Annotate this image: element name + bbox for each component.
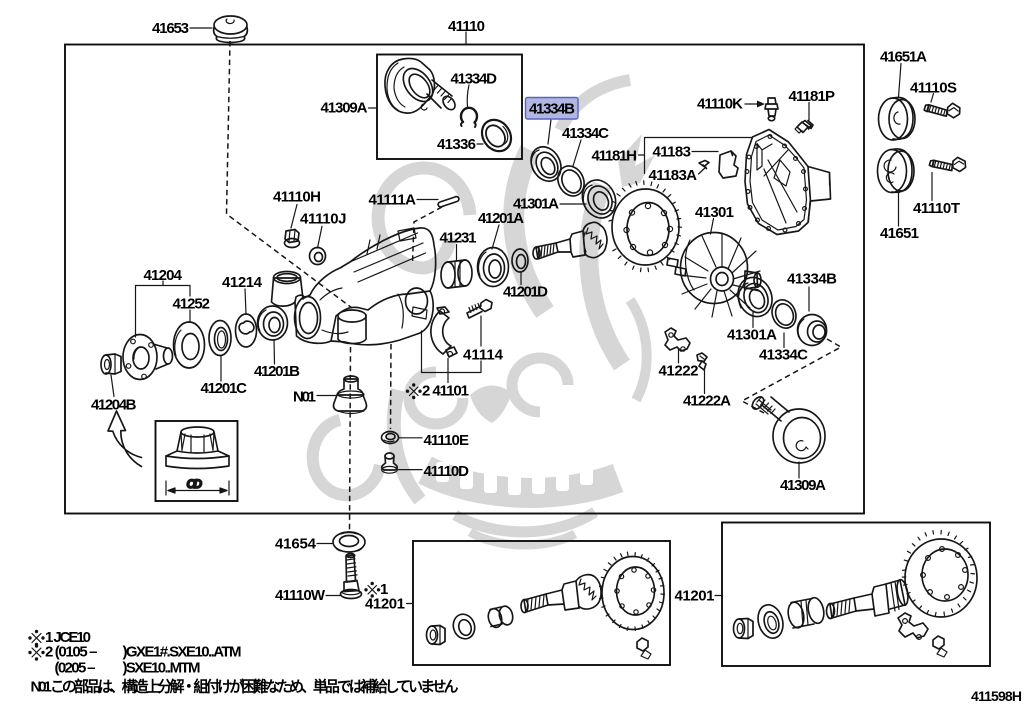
svg-text:41201C: 41201C	[201, 380, 248, 397]
svg-text:OD: OD	[187, 477, 203, 491]
svg-text:41201B: 41201B	[254, 363, 300, 380]
svg-text:2 41101: 2 41101	[422, 383, 469, 400]
svg-text:41222: 41222	[659, 363, 699, 380]
svg-text:41110: 41110	[448, 18, 485, 35]
svg-text:41309A: 41309A	[321, 100, 368, 117]
svg-text:N01: N01	[293, 389, 316, 406]
svg-text:41201A: 41201A	[478, 210, 524, 227]
svg-text:41110H: 41110H	[273, 189, 321, 206]
svg-text:41111A: 41111A	[369, 192, 417, 209]
svg-text:41110J: 41110J	[300, 211, 347, 228]
svg-text:41222A: 41222A	[683, 393, 731, 410]
svg-text:41654: 41654	[275, 536, 317, 553]
svg-text:41252: 41252	[173, 296, 211, 313]
svg-text:41653: 41653	[152, 20, 189, 37]
svg-text:41334C: 41334C	[562, 125, 609, 142]
svg-text:41651A: 41651A	[880, 49, 927, 66]
svg-text:41110K: 41110K	[697, 96, 743, 113]
svg-text:41201: 41201	[675, 588, 715, 605]
svg-text:411598H: 411598H	[971, 688, 1022, 704]
svg-text:41334B: 41334B	[787, 271, 837, 288]
svg-text:)SXE10..MTM: )SXE10..MTM	[123, 660, 201, 677]
svg-text:N01 この部品は、構造上分解・組付けが困難なため、単品では: N01 この部品は、構造上分解・組付けが困難なため、単品では補給していません	[31, 678, 459, 696]
svg-text:41204B: 41204B	[91, 397, 137, 414]
svg-text:41183A: 41183A	[649, 167, 698, 184]
svg-text:41110D: 41110D	[424, 463, 470, 480]
svg-text:2 (0105 –: 2 (0105 –	[45, 644, 98, 661]
svg-text:41114: 41114	[463, 347, 504, 364]
svg-text:41204: 41204	[144, 267, 183, 284]
svg-text:41201: 41201	[365, 596, 405, 613]
svg-text:41334D: 41334D	[451, 71, 498, 88]
svg-text:41336: 41336	[437, 136, 476, 153]
svg-text:41214: 41214	[222, 274, 263, 291]
svg-text:41110S: 41110S	[910, 80, 957, 97]
svg-text:41301: 41301	[695, 204, 734, 221]
svg-text:41651: 41651	[880, 225, 919, 242]
svg-text:41334B: 41334B	[529, 101, 575, 118]
svg-text:41301A: 41301A	[727, 327, 777, 344]
svg-text:)GXE1#.SXE10..ATM: )GXE1#.SXE10..ATM	[123, 644, 242, 661]
svg-text:41309A: 41309A	[780, 477, 826, 494]
svg-text:41110E: 41110E	[424, 432, 470, 449]
svg-text:41201D: 41201D	[503, 284, 548, 301]
svg-text:41183: 41183	[653, 144, 692, 161]
svg-text:41231: 41231	[440, 230, 477, 247]
svg-text:41181H: 41181H	[592, 148, 638, 165]
svg-text:(0205 –: (0205 –	[55, 660, 96, 677]
svg-text:41110T: 41110T	[913, 200, 960, 217]
svg-text:41334C: 41334C	[759, 347, 808, 364]
svg-text:41110W: 41110W	[275, 587, 326, 604]
svg-text:41181P: 41181P	[789, 88, 836, 105]
